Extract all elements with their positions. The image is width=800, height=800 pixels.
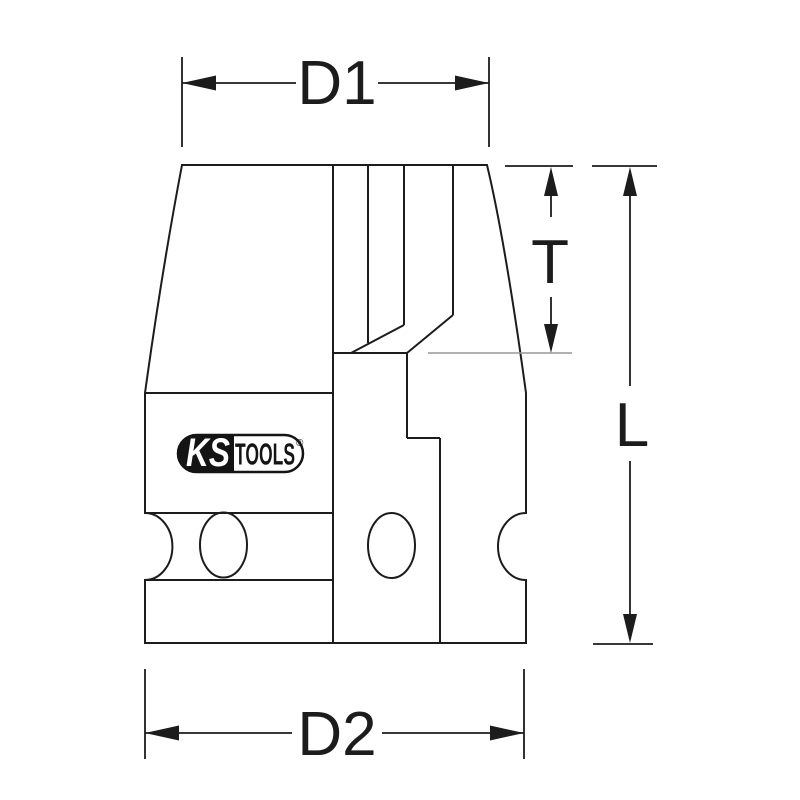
t-arrow-up-icon [544,167,558,196]
d1-arrow-left-icon [182,76,216,91]
logo-registered-mark: ® [296,438,304,449]
t-arrow-down-icon [544,324,558,353]
logo-tools-text: TOOLS [235,437,295,472]
t-label: T [531,228,569,297]
l-label: L [615,391,649,460]
pin-hole-front [368,513,415,578]
dimension-l: L [592,166,657,644]
dimension-d1: D1 [182,49,489,147]
d2-arrow-right-icon [490,726,524,741]
drawing-canvas: D1 D2 T L [0,0,800,800]
logo-ks-text: KS [186,431,230,475]
l-arrow-down-icon [623,614,637,643]
socket-technical-drawing: D1 D2 T L [0,0,800,800]
hex-corner-diagonal-2 [407,315,453,353]
pin-hole-left [200,513,247,578]
socket-body [145,165,526,643]
ks-tools-logo: KS TOOLS ® [178,431,304,475]
hex-corner-diagonal-1 [351,325,404,353]
d2-arrow-left-icon [145,726,179,741]
socket-outline [145,165,526,643]
dimension-d2: D2 [145,669,524,769]
d1-arrow-right-icon [455,76,489,91]
l-arrow-up-icon [623,167,637,196]
d1-label: D1 [297,49,376,118]
d2-label: D2 [297,700,376,769]
dimension-t: T [428,166,573,353]
